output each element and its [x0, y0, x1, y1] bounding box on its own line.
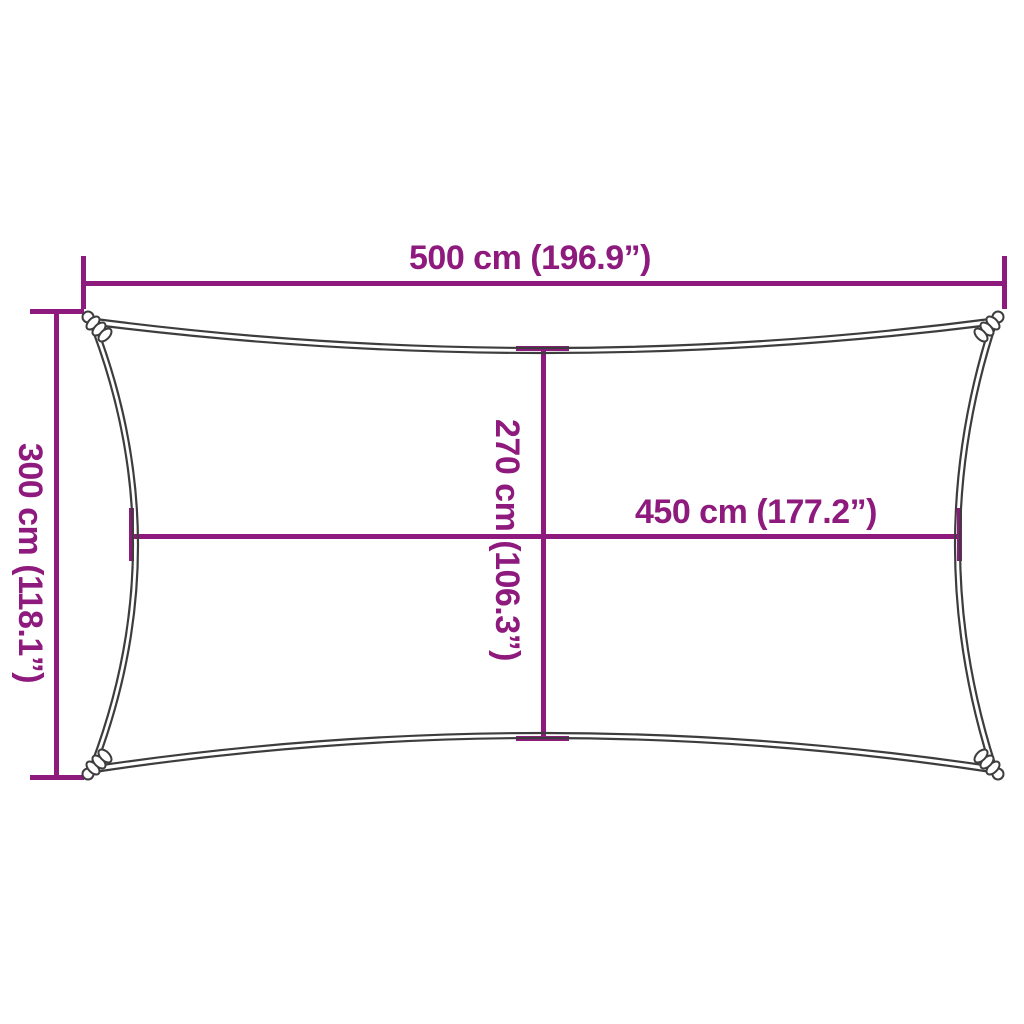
outer-width-label: 500 cm (196.9”): [409, 241, 651, 275]
corner-ring-bottom-right-icon: [972, 747, 1003, 779]
corner-ring-bottom-left-icon: [83, 747, 114, 779]
corner-ring-top-right-icon: [972, 312, 1003, 344]
outer-height-label: 300 cm (118.1”): [13, 443, 47, 683]
corner-ring-top-left-icon: [83, 312, 114, 344]
inner-width-label: 450 cm (177.2”): [635, 495, 877, 529]
sail-dimension-diagram: 500 cm (196.9”) 300 cm (118.1”) 270 cm (…: [0, 0, 1024, 1024]
inner-height-label: 270 cm (106.3”): [490, 419, 524, 661]
